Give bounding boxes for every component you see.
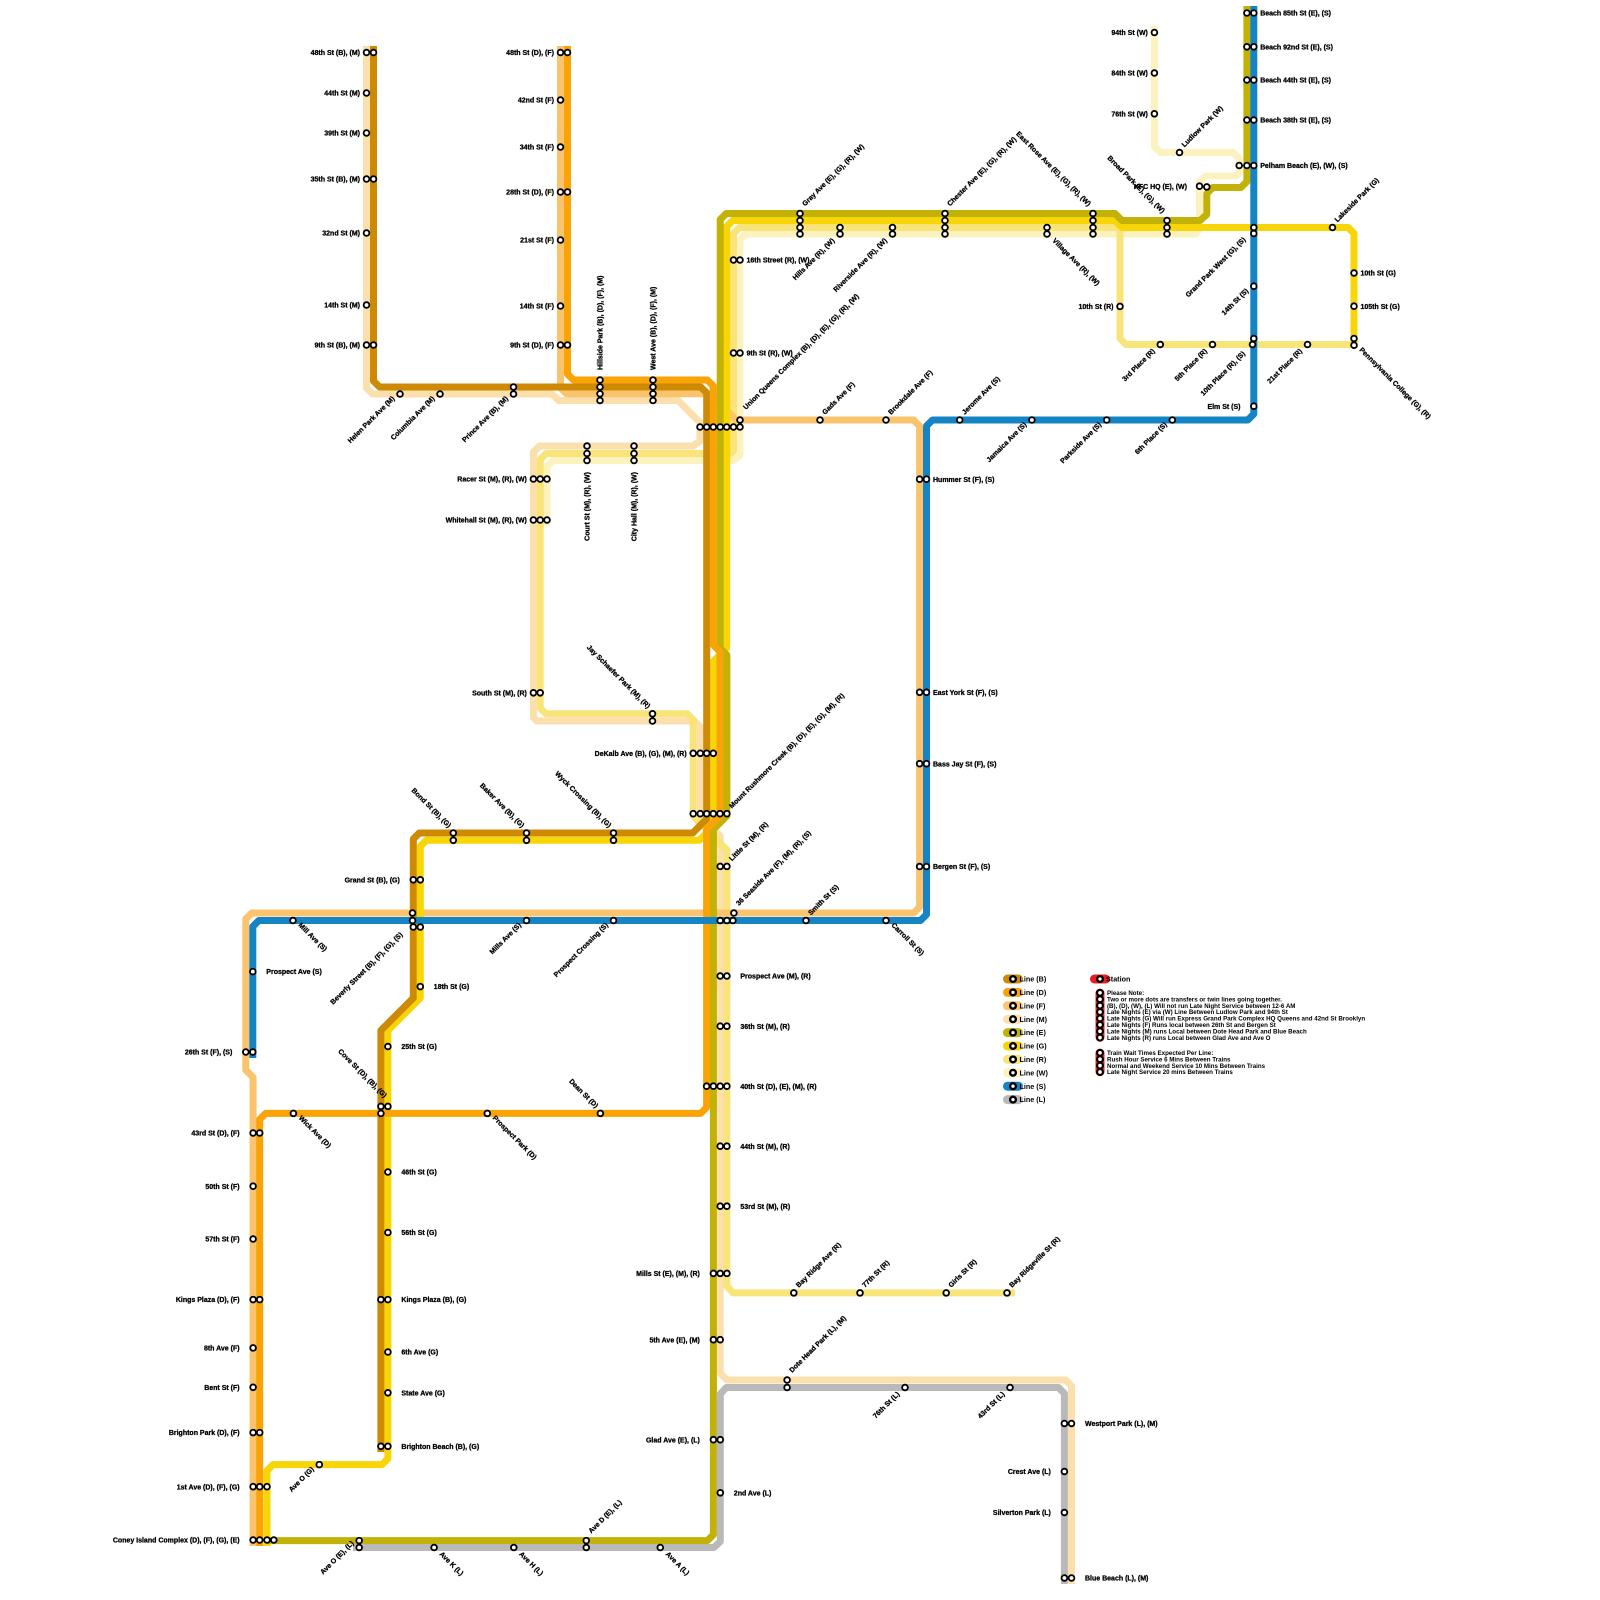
svg-text:48th St (D), (F): 48th St (D), (F) (506, 50, 554, 57)
svg-text:9th St (R), (W): 9th St (R), (W) (747, 351, 793, 358)
svg-text:43rd St (D), (F): 43rd St (D), (F) (191, 1131, 239, 1138)
svg-text:Line (W): Line (W) (1020, 1068, 1049, 1077)
svg-text:Line (R): Line (R) (1020, 1055, 1047, 1064)
svg-text:10th St (R): 10th St (R) (1079, 304, 1114, 311)
svg-text:16th Street (R), (W): 16th Street (R), (W) (747, 258, 810, 265)
svg-text:Late Night Service 20 mins Bet: Late Night Service 20 mins Between Train… (1107, 1069, 1233, 1076)
svg-text:84th St (W): 84th St (W) (1111, 71, 1148, 78)
svg-text:14th St (F): 14th St (F) (520, 304, 554, 311)
svg-text:Pelham Beach (E), (W), (S): Pelham Beach (E), (W), (S) (1260, 163, 1348, 170)
svg-text:Line (F): Line (F) (1020, 1001, 1047, 1010)
svg-text:NFC HQ (E), (W): NFC HQ (E), (W) (1134, 184, 1187, 191)
svg-text:105th St (G): 105th St (G) (1361, 304, 1400, 311)
svg-text:Westport Park (L), (M): Westport Park (L), (M) (1085, 1421, 1158, 1428)
svg-text:Line (G): Line (G) (1020, 1042, 1048, 1051)
svg-text:48th St (B), (M): 48th St (B), (M) (311, 50, 360, 57)
svg-text:Hillside Park (B), (D), (F), (: Hillside Park (B), (D), (F), (M) (598, 276, 605, 371)
svg-text:9th St (B), (M): 9th St (B), (M) (315, 343, 361, 350)
svg-text:Line (E): Line (E) (1020, 1028, 1047, 1037)
svg-text:8th Ave (F): 8th Ave (F) (204, 1346, 240, 1353)
svg-text:Brighton Park (D), (F): Brighton Park (D), (F) (169, 1430, 240, 1437)
svg-text:26th St (F), (S): 26th St (F), (S) (185, 1050, 232, 1057)
svg-text:Late Nights (R) runs Local bet: Late Nights (R) runs Local between Glad … (1107, 1035, 1271, 1042)
svg-text:Elm St (S): Elm St (S) (1207, 404, 1240, 411)
svg-text:Whitehall St (M), (R), (W): Whitehall St (M), (R), (W) (446, 518, 527, 525)
svg-text:South St (M), (R): South St (M), (R) (472, 690, 527, 697)
svg-text:Station: Station (1106, 975, 1130, 984)
svg-text:Line (M): Line (M) (1020, 1015, 1048, 1024)
svg-text:West Ave (B), (D), (F), (M): West Ave (B), (D), (F), (M) (651, 287, 658, 370)
svg-text:State Ave (G): State Ave (G) (401, 1390, 444, 1397)
svg-text:Beach 85th St (E), (S): Beach 85th St (E), (S) (1260, 11, 1331, 18)
svg-text:Bass Jay St (F), (S): Bass Jay St (F), (S) (933, 761, 996, 768)
svg-text:Beach 44th St (E), (S): Beach 44th St (E), (S) (1260, 78, 1331, 85)
svg-text:Hummer St (F), (S): Hummer St (F), (S) (933, 477, 994, 484)
svg-text:Beach 92nd St (E), (S): Beach 92nd St (E), (S) (1260, 44, 1333, 51)
svg-text:Prospect Ave (M), (R): Prospect Ave (M), (R) (740, 974, 810, 981)
svg-text:50th St (F): 50th St (F) (205, 1184, 239, 1191)
svg-text:46th St (G): 46th St (G) (401, 1170, 436, 1177)
svg-text:Kings Plaza (D), (F): Kings Plaza (D), (F) (176, 1297, 240, 1304)
svg-text:Coney Island Complex (D), (F),: Coney Island Complex (D), (F), (G), (E) (113, 1538, 240, 1545)
svg-text:2nd Ave (L): 2nd Ave (L) (734, 1490, 772, 1497)
svg-text:Line (B): Line (B) (1020, 975, 1047, 984)
svg-text:32nd St (M): 32nd St (M) (322, 231, 360, 238)
svg-text:6th Ave (G): 6th Ave (G) (401, 1350, 438, 1357)
svg-text:44th St (M): 44th St (M) (324, 91, 360, 98)
svg-text:Prospect Ave (S): Prospect Ave (S) (266, 969, 322, 976)
svg-text:5th Ave (E), (M): 5th Ave (E), (M) (649, 1337, 699, 1344)
svg-text:Mills St (E), (M), (R): Mills St (E), (M), (R) (636, 1271, 700, 1278)
svg-text:53rd St (M), (R): 53rd St (M), (R) (740, 1204, 790, 1211)
svg-text:39th St (M): 39th St (M) (324, 131, 360, 138)
svg-text:DeKalb Ave (B), (G), (M), (R): DeKalb Ave (B), (G), (M), (R) (595, 751, 687, 758)
svg-text:Court St (M), (R), (W): Court St (M), (R), (W) (585, 472, 592, 541)
svg-text:34th St (F): 34th St (F) (520, 145, 554, 152)
svg-text:35th St (B), (M): 35th St (B), (M) (311, 177, 360, 184)
svg-text:10th St (G): 10th St (G) (1361, 271, 1396, 278)
svg-text:44th St (M), (R): 44th St (M), (R) (740, 1144, 789, 1151)
svg-text:Line (S): Line (S) (1020, 1082, 1047, 1091)
svg-text:Racer St (M), (R), (W): Racer St (M), (R), (W) (457, 477, 527, 484)
svg-text:21st St (F): 21st St (F) (520, 238, 554, 245)
svg-text:40th St (D), (E), (M), (R): 40th St (D), (E), (M), (R) (740, 1084, 816, 1091)
svg-text:14th St (M): 14th St (M) (324, 303, 360, 310)
svg-text:94th St (W): 94th St (W) (1111, 30, 1148, 37)
svg-text:City Hall (M), (R), (W): City Hall (M), (R), (W) (632, 472, 639, 541)
svg-text:25th St (G): 25th St (G) (401, 1044, 436, 1051)
svg-text:57th St (F): 57th St (F) (205, 1237, 239, 1244)
svg-text:Grand St (B), (G): Grand St (B), (G) (345, 877, 400, 884)
svg-text:28th St (D), (F): 28th St (D), (F) (506, 190, 554, 197)
svg-text:Brighton Beach (B), (G): Brighton Beach (B), (G) (401, 1444, 479, 1451)
svg-text:Line (D): Line (D) (1020, 988, 1047, 997)
svg-text:Bent St (F): Bent St (F) (204, 1385, 239, 1392)
svg-text:Beach 38th St (E), (S): Beach 38th St (E), (S) (1260, 118, 1331, 125)
svg-text:Line (L): Line (L) (1020, 1095, 1047, 1104)
svg-text:Bergen St (F), (S): Bergen St (F), (S) (933, 864, 990, 871)
svg-text:Silverton Park (L): Silverton Park (L) (993, 1510, 1051, 1517)
svg-text:Kings Plaza (B), (G): Kings Plaza (B), (G) (401, 1297, 466, 1304)
svg-text:9th St (D), (F): 9th St (D), (F) (510, 343, 554, 350)
svg-text:Crest Ave (L): Crest Ave (L) (1008, 1469, 1051, 1476)
svg-text:1st Ave (D), (F), (G): 1st Ave (D), (F), (G) (177, 1484, 240, 1491)
svg-text:36th St (M), (R): 36th St (M), (R) (740, 1024, 789, 1031)
svg-text:18th St (G): 18th St (G) (434, 984, 469, 991)
svg-text:42nd St (F): 42nd St (F) (518, 98, 554, 105)
svg-text:76th St (W): 76th St (W) (1111, 111, 1148, 118)
svg-text:56th St (G): 56th St (G) (401, 1230, 436, 1237)
svg-text:Glad Ave (E), (L): Glad Ave (E), (L) (646, 1437, 700, 1444)
svg-text:Blue Beach (L), (M): Blue Beach (L), (M) (1085, 1576, 1148, 1583)
svg-text:East York St (F), (S): East York St (F), (S) (933, 690, 998, 697)
